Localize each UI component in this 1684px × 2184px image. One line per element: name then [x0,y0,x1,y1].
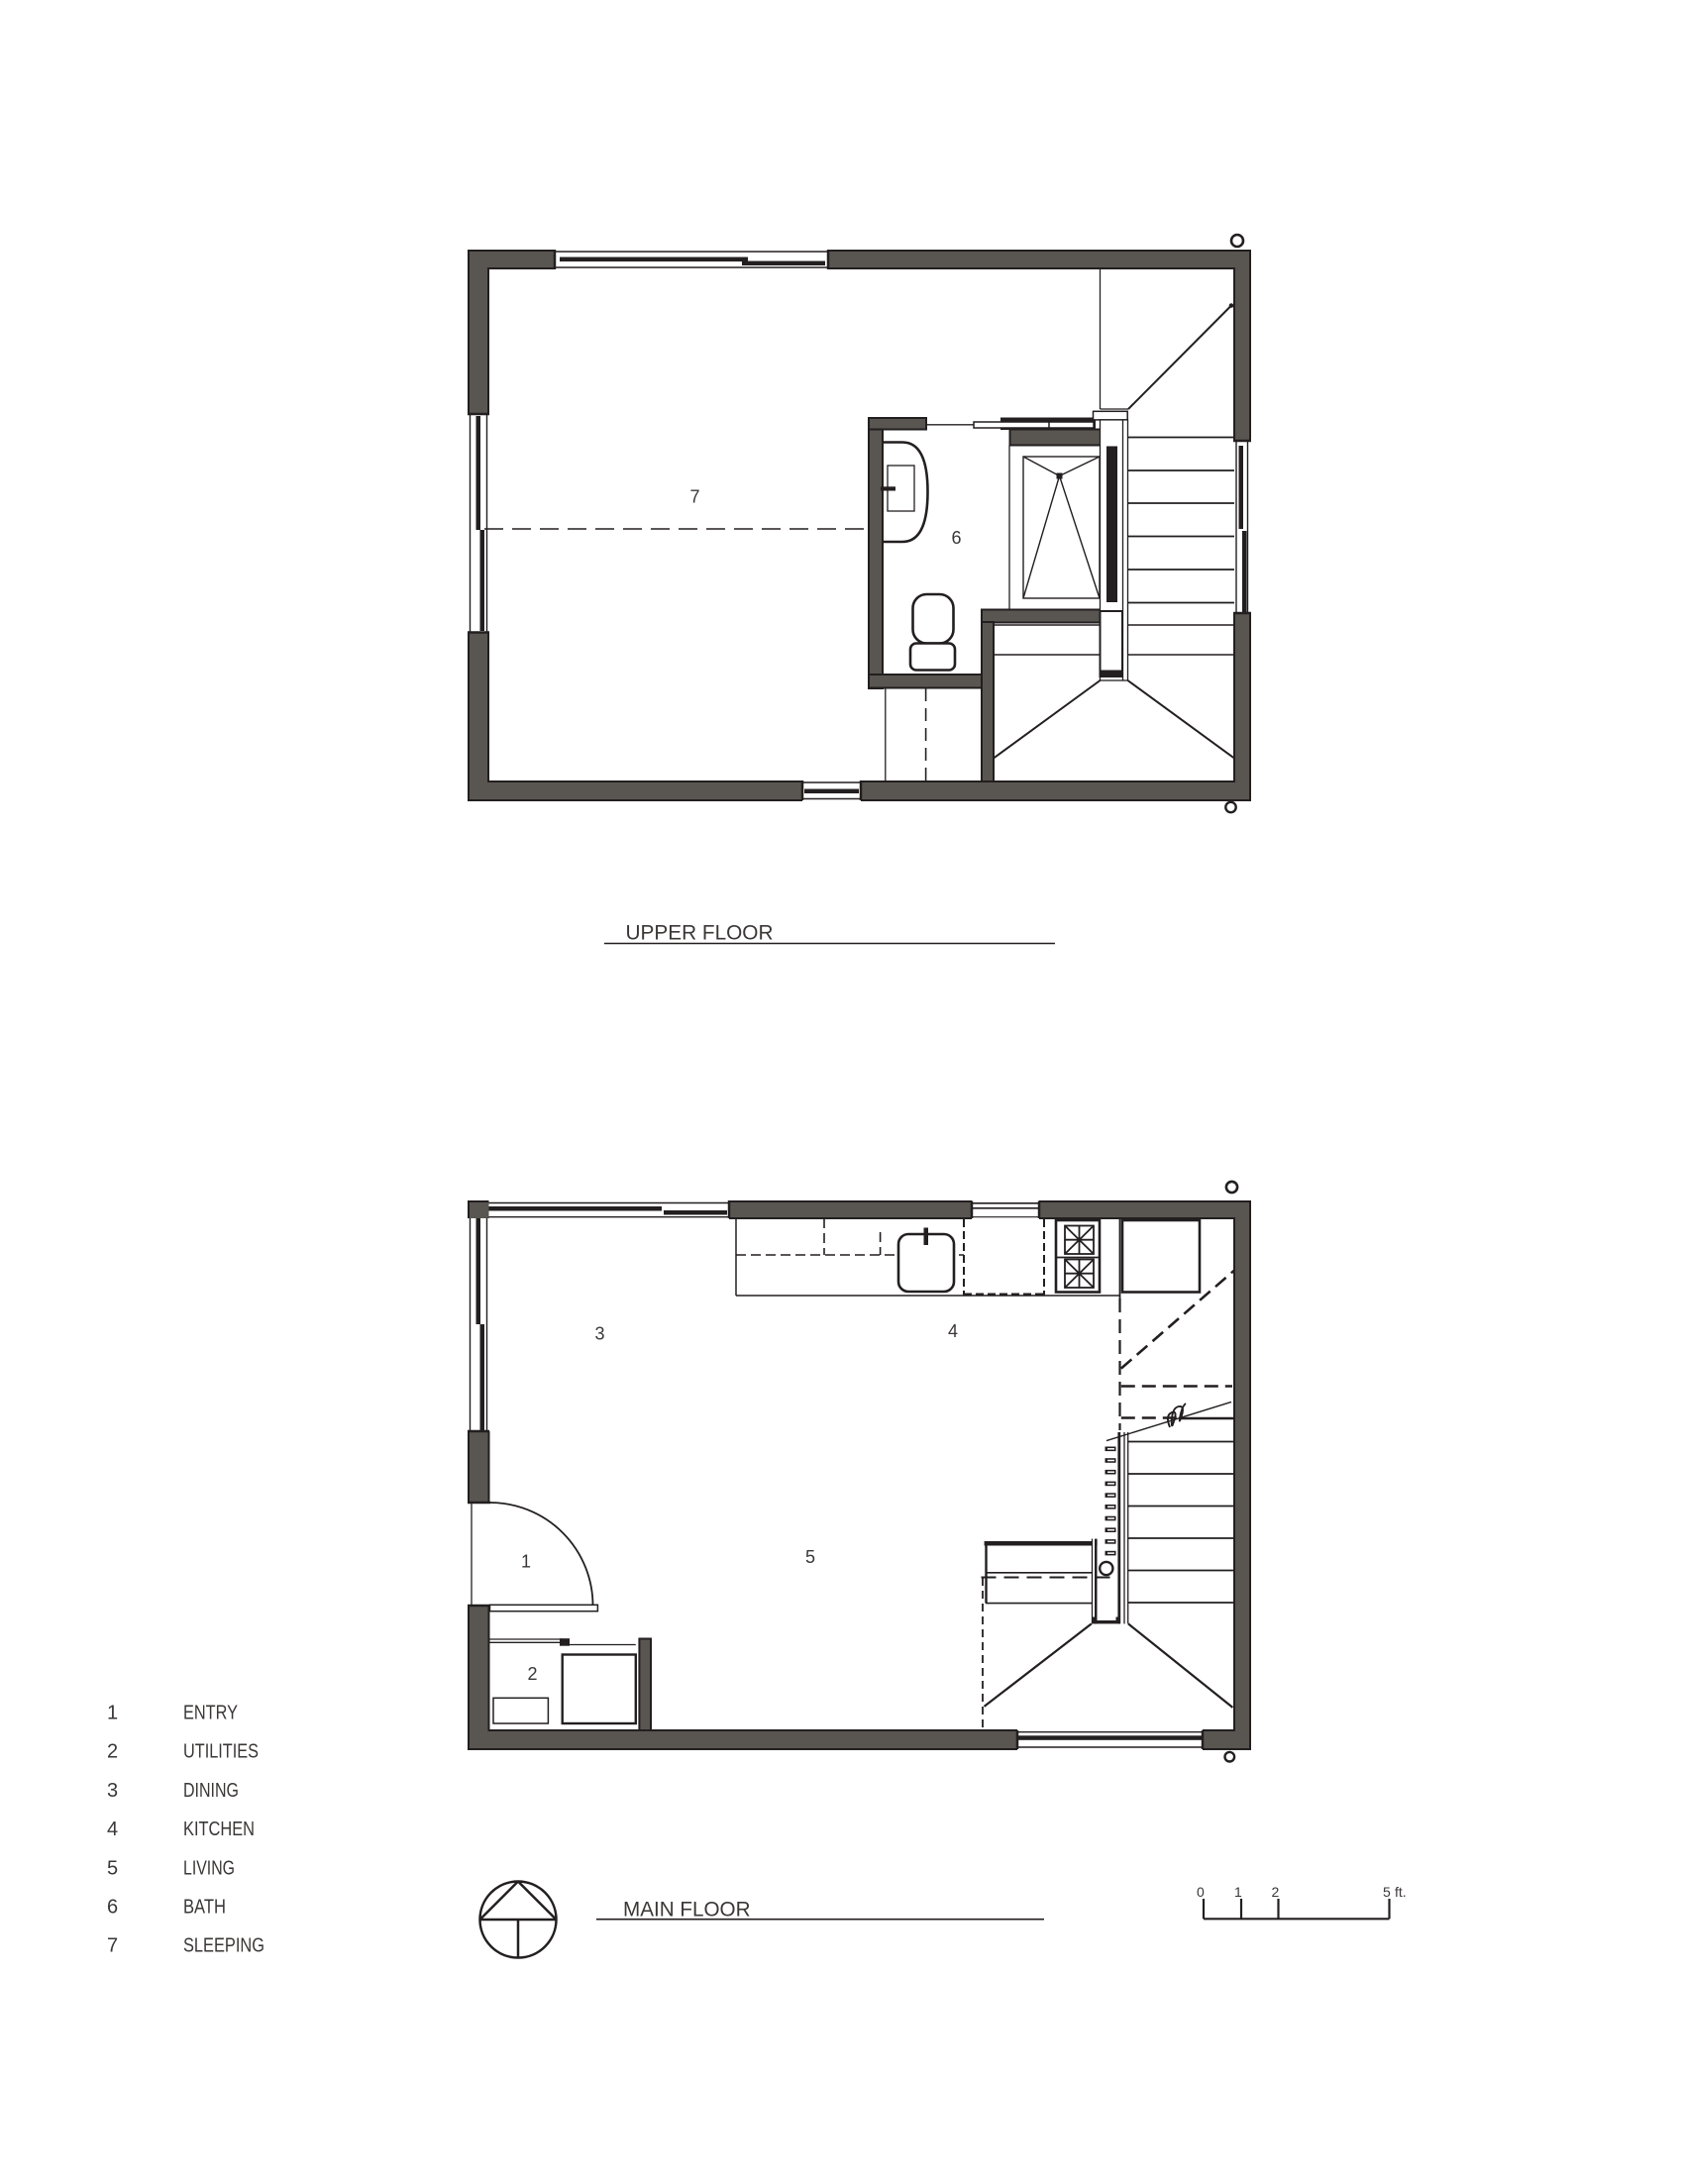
svg-text:DINING: DINING [183,1780,239,1802]
svg-text:2: 2 [527,1664,537,1684]
svg-text:3: 3 [107,1780,118,1802]
svg-text:2: 2 [1272,1884,1280,1900]
svg-text:5: 5 [107,1857,118,1879]
svg-text:UPPER FLOOR: UPPER FLOOR [626,921,774,945]
svg-text:BATH: BATH [183,1897,226,1919]
svg-text:3: 3 [594,1324,604,1344]
svg-text:5: 5 [1383,1884,1391,1900]
svg-text:KITCHEN: KITCHEN [183,1819,255,1840]
svg-text:5: 5 [805,1547,815,1567]
svg-text:7: 7 [689,487,699,507]
svg-text:4: 4 [107,1819,118,1840]
svg-text:1: 1 [521,1552,531,1572]
svg-text:ft.: ft. [1395,1884,1407,1900]
svg-text:6: 6 [107,1897,118,1919]
svg-text:6: 6 [951,528,961,548]
svg-text:1: 1 [1234,1884,1242,1900]
svg-text:2: 2 [107,1741,118,1763]
svg-text:SLEEPING: SLEEPING [183,1935,264,1957]
svg-text:0: 0 [1197,1884,1205,1900]
svg-text:7: 7 [107,1935,118,1957]
svg-text:4: 4 [948,1321,958,1341]
svg-text:1: 1 [107,1703,118,1724]
svg-text:ENTRY: ENTRY [183,1703,238,1724]
svg-text:MAIN FLOOR: MAIN FLOOR [623,1898,751,1922]
svg-text:LIVING: LIVING [183,1857,235,1879]
svg-text:UTILITIES: UTILITIES [183,1741,259,1763]
